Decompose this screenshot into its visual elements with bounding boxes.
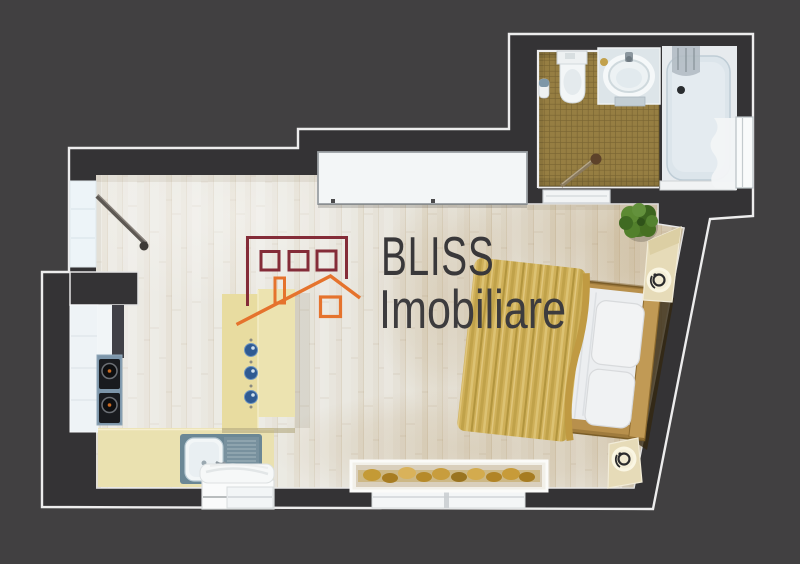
- svg-text:Imobiliare: Imobiliare: [379, 279, 566, 340]
